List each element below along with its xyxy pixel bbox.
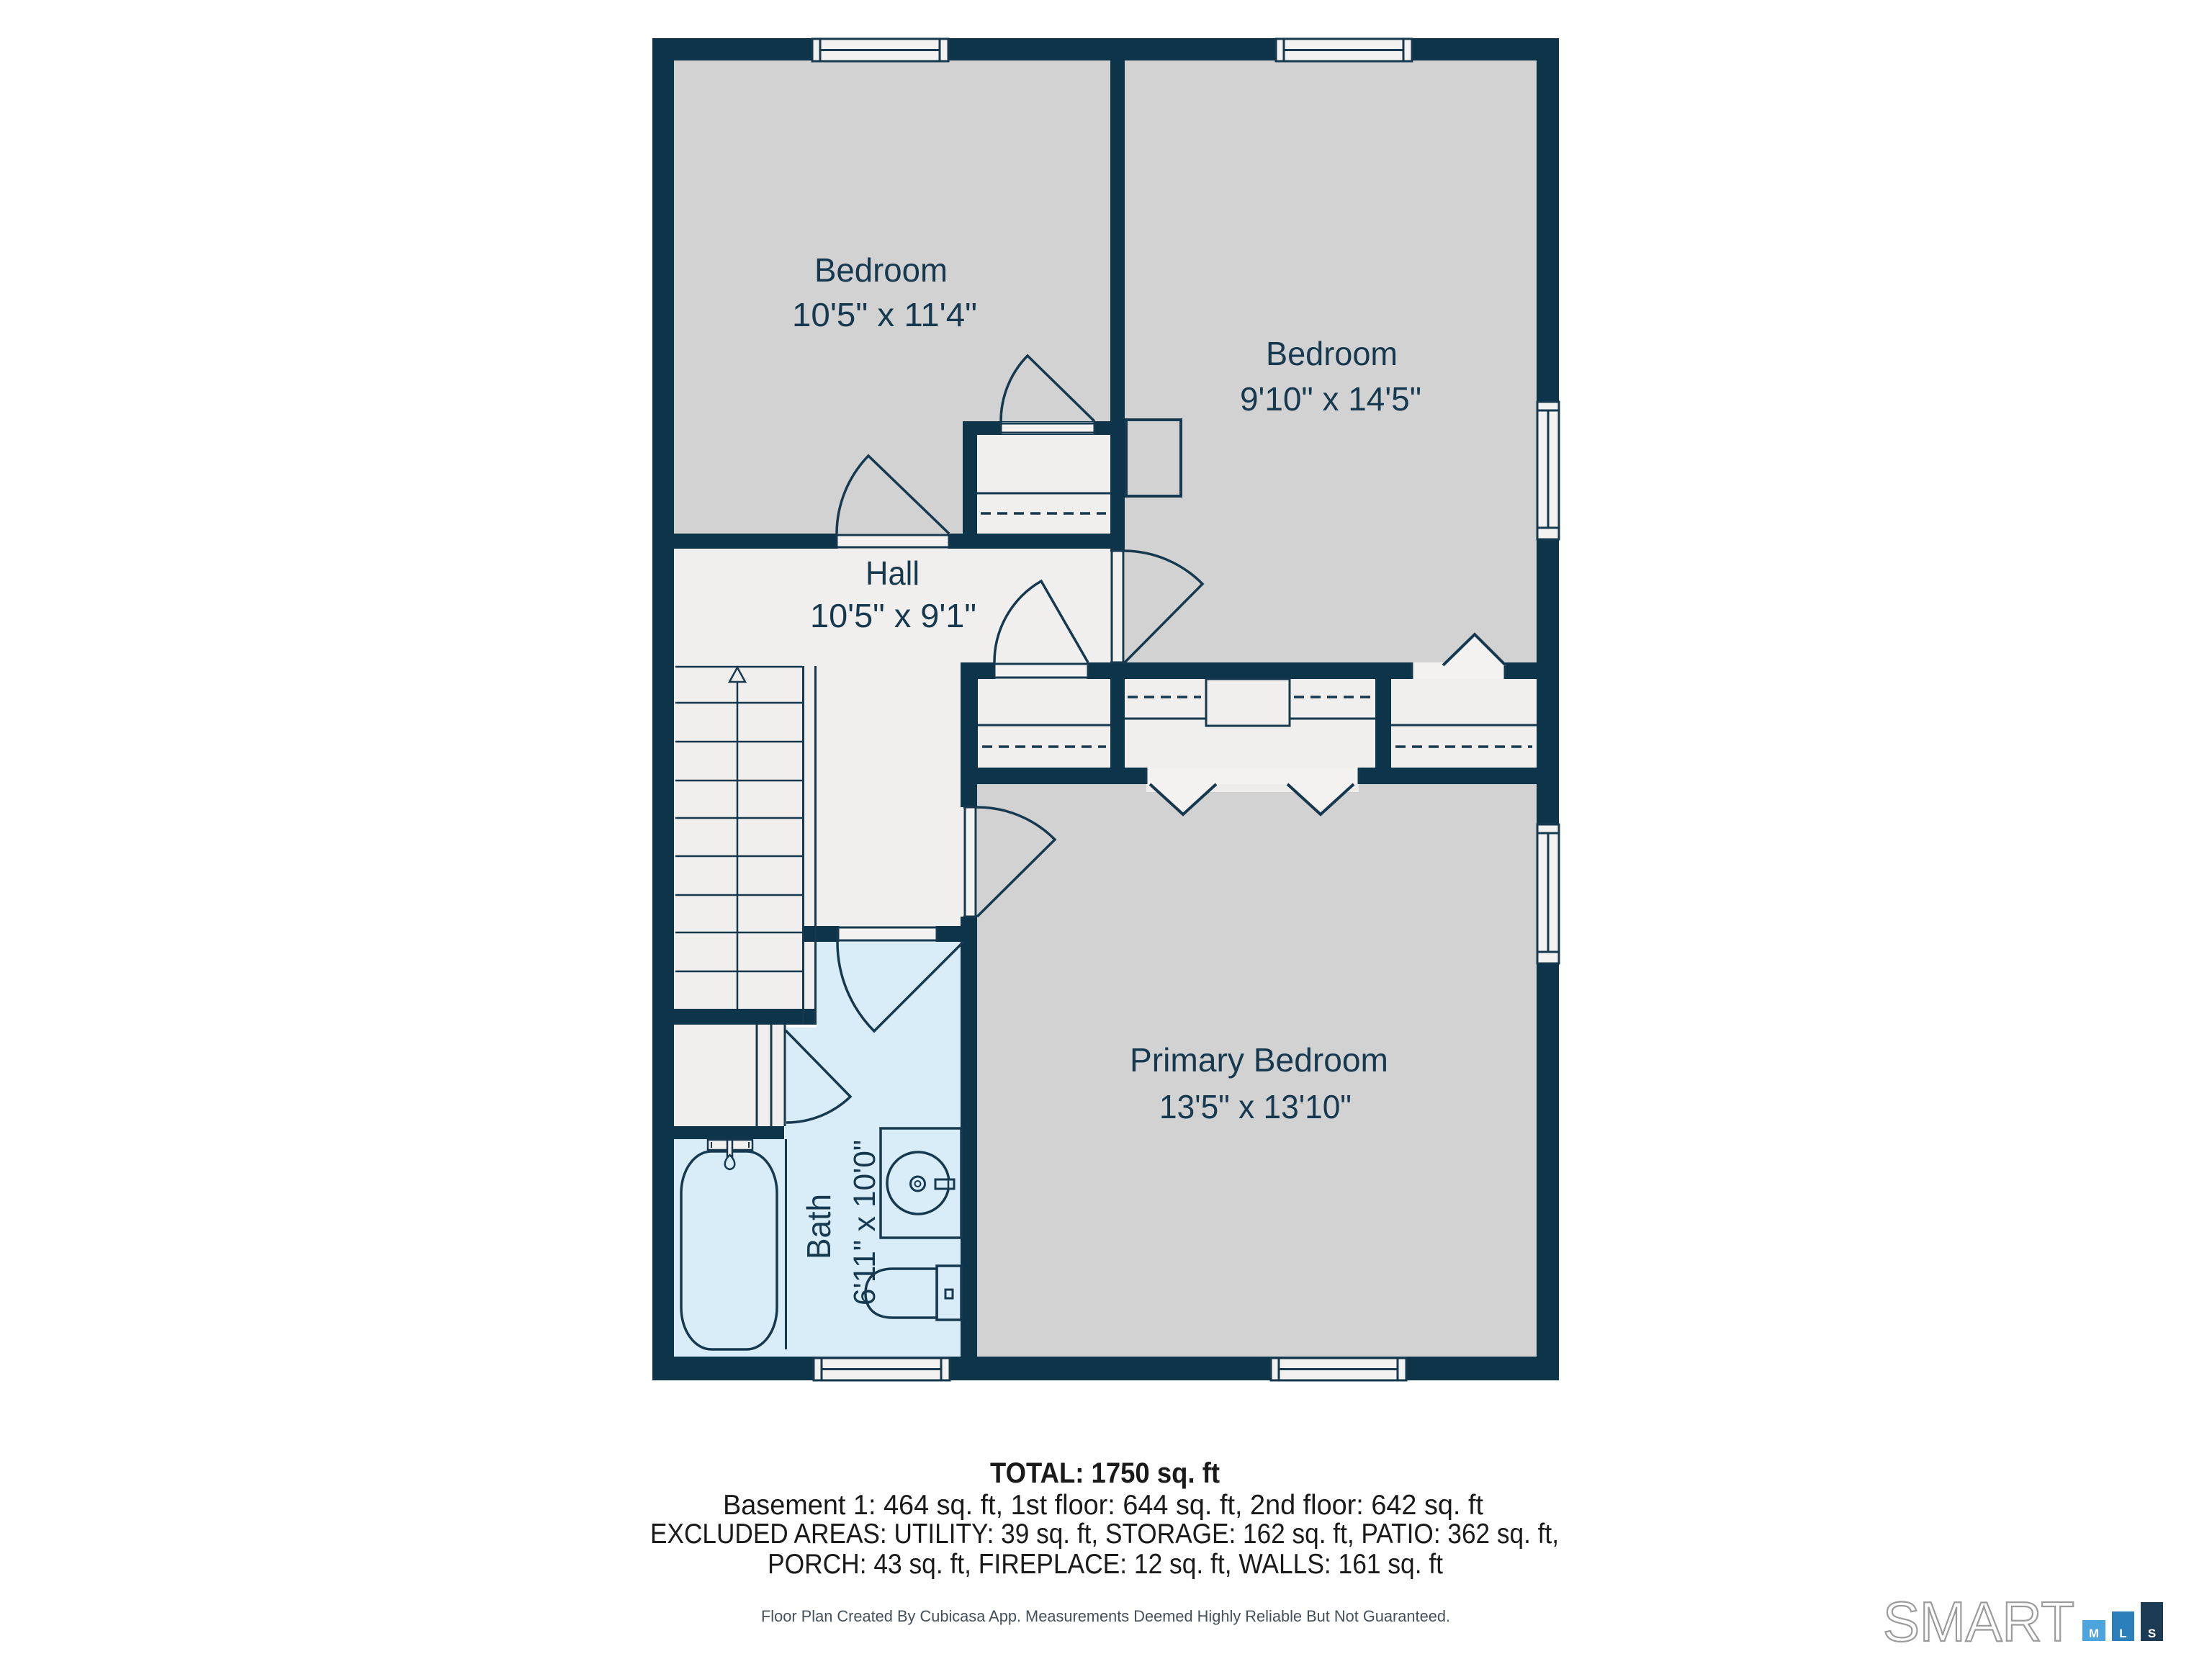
svg-text:13'5" x 13'10": 13'5" x 13'10" xyxy=(1159,1088,1352,1125)
svg-text:PORCH: 43 sq. ft, FIREPLACE: 1: PORCH: 43 sq. ft, FIREPLACE: 12 sq. ft, … xyxy=(768,1549,1443,1580)
svg-text:EXCLUDED AREAS: UTILITY: 39 sq: EXCLUDED AREAS: UTILITY: 39 sq. ft, STOR… xyxy=(650,1519,1559,1550)
svg-text:Bedroom: Bedroom xyxy=(1266,335,1398,372)
svg-text:10'5" x 9'1": 10'5" x 9'1" xyxy=(810,597,976,634)
svg-text:10'5" x 11'4": 10'5" x 11'4" xyxy=(792,296,977,333)
svg-text:TOTAL: 1750 sq. ft: TOTAL: 1750 sq. ft xyxy=(990,1457,1220,1489)
svg-text:Bath: Bath xyxy=(800,1194,837,1259)
svg-text:M: M xyxy=(2089,1627,2099,1640)
svg-text:Floor Plan Created By Cubicasa: Floor Plan Created By Cubicasa App. Meas… xyxy=(761,1607,1450,1625)
svg-text:9'10" x 14'5": 9'10" x 14'5" xyxy=(1240,380,1421,418)
svg-text:6'11" x 10'0": 6'11" x 10'0" xyxy=(848,1140,882,1305)
svg-text:Primary Bedroom: Primary Bedroom xyxy=(1130,1041,1388,1079)
svg-text:Bedroom: Bedroom xyxy=(814,251,948,289)
svg-text:Basement 1: 464 sq. ft, 1st fl: Basement 1: 464 sq. ft, 1st floor: 644 s… xyxy=(723,1490,1483,1521)
svg-text:S: S xyxy=(2148,1627,2156,1640)
svg-text:SMART: SMART xyxy=(1883,1590,2074,1653)
svg-text:Hall: Hall xyxy=(866,554,920,592)
svg-text:L: L xyxy=(2119,1627,2126,1640)
